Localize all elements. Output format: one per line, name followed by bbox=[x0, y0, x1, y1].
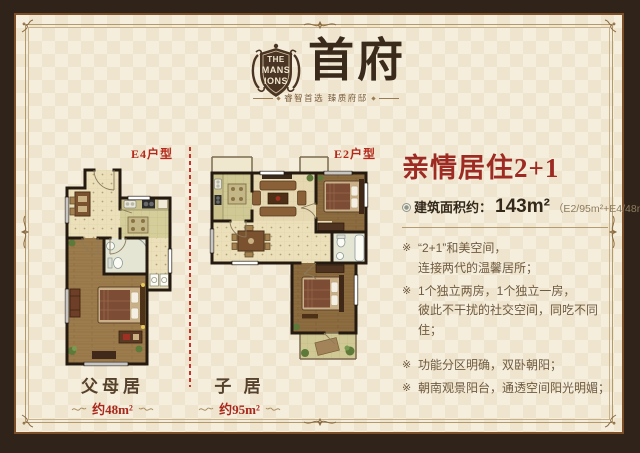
bullet-marker-icon: ※ bbox=[402, 282, 418, 341]
flourish-icon bbox=[71, 405, 87, 413]
diamond-ornament-icon bbox=[277, 96, 281, 100]
tagline-rule-right bbox=[379, 98, 399, 99]
plan-type-label-e4: E4户型 bbox=[131, 145, 173, 162]
info-divider bbox=[402, 227, 608, 228]
caption-name: 子 居 bbox=[172, 372, 307, 397]
caption-name: 父母居 bbox=[45, 372, 180, 397]
circle-bullet-icon bbox=[402, 203, 411, 212]
bullet-text: 彼此不干扰的社交空间，同吃不同住； bbox=[418, 301, 616, 341]
crest-line-1: THE bbox=[267, 55, 285, 64]
room-balcony-top-left bbox=[212, 157, 252, 173]
headline: 亲情居住2+1 bbox=[402, 146, 616, 185]
area-summary: 建筑面积约： 143m² （E2/95m²+E4/48m²） bbox=[402, 196, 616, 218]
diamond-ornament-icon bbox=[371, 96, 375, 100]
plan-divider-dashed-line bbox=[189, 147, 191, 387]
brochure-page: THE MANS IONS 首府 睿智首选 臻质府邸 E4户型 E2户型 bbox=[0, 0, 640, 453]
flourish-icon bbox=[198, 405, 214, 413]
bullet-marker-icon: ※ bbox=[402, 239, 418, 279]
area-value: 143m² bbox=[495, 196, 550, 218]
brand-title: 首府 bbox=[308, 36, 418, 87]
bullet-item: ※ 功能分区明确，双卧朝阳； bbox=[402, 356, 616, 376]
room-dining bbox=[212, 221, 332, 263]
area-label: 建筑面积约： bbox=[414, 197, 492, 216]
brand-tagline: 睿智首选 臻质府邸 bbox=[238, 92, 414, 104]
area-detail: （E2/95m²+E4/48m²） bbox=[553, 201, 640, 216]
caption-area: 约48m² bbox=[92, 399, 133, 418]
bullet-text: 功能分区明确，双卧朝阳； bbox=[418, 356, 562, 376]
bullet-item: ※ 1个独立两房，1个独立一房， 彼此不干扰的社交空间，同吃不同住； bbox=[402, 282, 616, 341]
bullet-text: 连接两代的温馨居所； bbox=[418, 259, 538, 279]
brand-tagline-text: 睿智首选 臻质府邸 bbox=[284, 92, 368, 104]
bullet-marker-icon: ※ bbox=[402, 379, 418, 399]
flourish-icon bbox=[138, 405, 154, 413]
flourish-icon bbox=[265, 405, 281, 413]
bullet-text: 朝南观景阳台，通透空间阳光明媚； bbox=[418, 379, 610, 399]
bullet-text: 1个独立两房，1个独立一房， bbox=[418, 282, 616, 302]
room-balcony-top bbox=[300, 157, 328, 173]
bullet-item: ※ “2+1”和美空间， 连接两代的温馨居所； bbox=[402, 239, 616, 279]
floorplan-e4 bbox=[62, 161, 194, 373]
selling-points: ※ “2+1”和美空间， 连接两代的温馨居所； ※ 1个独立两房，1个独立一房，… bbox=[402, 239, 616, 399]
crest-line-3: IONS bbox=[264, 76, 288, 86]
tagline-rule-left bbox=[253, 98, 273, 99]
caption-area: 约95m² bbox=[219, 399, 260, 418]
bullet-marker-icon: ※ bbox=[402, 356, 418, 376]
crest-line-2: MANS bbox=[262, 65, 291, 75]
caption-child-home: 子 居 约95m² bbox=[172, 372, 307, 418]
floorplan-e2 bbox=[204, 151, 392, 367]
caption-parents-home: 父母居 约48m² bbox=[45, 372, 180, 418]
bullet-text: “2+1”和美空间， bbox=[418, 239, 538, 259]
bullet-item: ※ 朝南观景阳台，通透空间阳光明媚； bbox=[402, 379, 616, 399]
info-panel: 亲情居住2+1 建筑面积约： 143m² （E2/95m²+E4/48m²） ※… bbox=[402, 146, 616, 402]
